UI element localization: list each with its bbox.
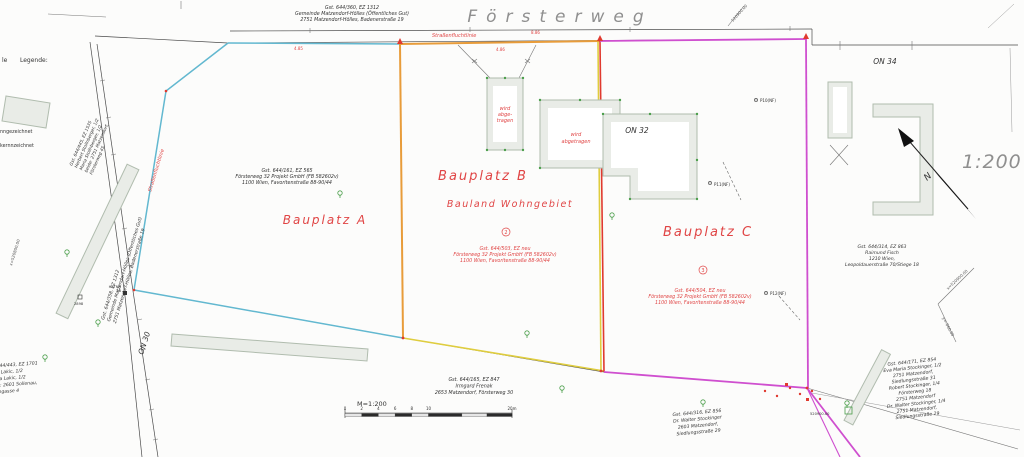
legend-partial-line: kernnzeichnet <box>0 143 34 149</box>
plot-b-label: Bauplatz B <box>438 169 528 184</box>
building-on32-interior <box>611 122 689 191</box>
plot-c-south-boundary <box>604 372 807 388</box>
plot-c-owner-line: 1100 Wien, Favoritenstraße 88-90/44 <box>655 300 745 306</box>
coord-label-top: 520900.00 <box>730 3 748 23</box>
plot-c-number: 3 <box>701 268 704 274</box>
parcel-text-line: Gemeinde Matzendorf-Hölles (Öffentliches… <box>295 10 409 17</box>
coord-label-right-x: x=520900.00 <box>945 268 969 291</box>
coordinate-text: 520900.00 <box>730 3 748 23</box>
coordinate-text: x=520800.00 <box>8 238 21 266</box>
plot-b-owner-line: 1100 Wien, Favoritenstraße 88-90/44 <box>460 258 550 264</box>
on30-label: ON 30 <box>136 330 152 355</box>
boundary-extension-2 <box>807 388 840 457</box>
scale-ratio-label: 1:200 <box>962 151 1022 173</box>
scale-tick-label: 10 <box>426 406 432 411</box>
scale-tick-label: 8 <box>411 406 414 411</box>
legend-title: Legende: <box>20 57 48 64</box>
plot-a-owner-line: 1100 Wien, Favoritenstraße 88-90/44 <box>242 180 332 186</box>
demolish-note-line: wird <box>571 132 583 138</box>
on34-label: ON 34 <box>873 57 897 66</box>
coord-label-left: x=520800.00 <box>8 238 21 266</box>
dimension-label: 8.86 <box>531 30 540 35</box>
neighbor-bottom-right-large-text: Gst. 644/171, EZ 854 Eva Maria Stockinge… <box>882 356 947 422</box>
plot-c-owner-line: Försterweg 32 Projekt GmbH (FB 582602v) <box>648 294 751 300</box>
point-label: P11(NF) <box>714 182 730 187</box>
parcel-text-line: 2653 Matzendorf, Försterweg 30 <box>435 390 513 396</box>
scale-tick-label: 6 <box>394 406 397 411</box>
plot-a-south-boundary <box>134 290 403 338</box>
on30-label-group: ON 30 <box>136 330 152 355</box>
plot-b-number: 2 <box>504 230 507 236</box>
neighbor-right-text: Gst. 644/314, EZ 863 Raimund Fisch 1210 … <box>845 244 919 268</box>
parcel-text-line: Braungasse 4 <box>0 388 19 396</box>
coordinate-text: y=-060.00 <box>941 316 956 337</box>
parcel-text-line: Raimund Fisch <box>865 250 899 256</box>
point-label: P12(NF) <box>770 291 786 296</box>
street-alignment-left-label: Straßenfluchtlinie <box>147 148 166 192</box>
building-bottom-strip <box>171 334 368 361</box>
street-name-label: Försterweg <box>467 7 652 27</box>
plot-b-owner-line: Försterweg 32 Projekt GmbH (FB 582602v) <box>453 252 556 258</box>
plot-a-label: Bauplatz A <box>283 213 368 227</box>
plot-b-texts: Bauplatz B Bauland Wohngebiet 2 Gst. 644… <box>438 169 573 264</box>
demolish-note-line: tragen <box>497 118 514 124</box>
plot-a-owner-line: Gst. 644/161, EZ 565 <box>261 168 312 174</box>
dimension-label: 4.86 <box>496 47 505 52</box>
plot-b-owner-line: Gst. 644/503, EZ neu <box>480 246 531 252</box>
plot-a-texts: Gst. 644/161, EZ 565 Försterweg 32 Proje… <box>235 168 367 227</box>
on32-label: ON 32 <box>625 126 649 135</box>
scale-tick-label: 0 <box>344 406 347 411</box>
scale-tick-label: 2 <box>360 406 363 411</box>
point-label: P10(NF) <box>760 98 776 103</box>
scale-tick-label: 20m <box>508 406 517 411</box>
demolish-note-line: abgetragen <box>562 139 591 145</box>
building-right-small-interior <box>833 87 847 133</box>
legend-partial: le <box>2 57 8 64</box>
building-on34 <box>873 104 933 215</box>
parcel-text-line: Irmgard Frenak <box>455 384 492 390</box>
plot-c-east-boundary <box>806 39 808 388</box>
plot-b-zone-label: Bauland Wohngebiet <box>447 199 573 210</box>
parcel-text-line: Leopoldauerstraße 70/Stiege 18 <box>845 262 919 268</box>
parcel-text-line: Gst. 644/165, EZ 847 <box>448 377 499 383</box>
legend-partial-line: nngezeichnet <box>0 129 33 135</box>
scale-tick-label: 4 <box>377 406 380 411</box>
plot-c-owner-line: Gst. 644/504, EZ neu <box>675 288 726 294</box>
street-alignment-text: Straßenfluchtlinie <box>147 148 166 192</box>
neighbor-bottom-right-small-text: Gst. 644/316, EZ 856 Dr. Walter Stocking… <box>672 408 724 438</box>
neighbor-lower-left-text: Gst. 644/443, EZ 1701 Bojan Lakic, 1/2 J… <box>0 360 40 396</box>
plot-c-north-boundary <box>600 39 806 41</box>
plot-a-west-boundary <box>134 43 228 290</box>
point-label: 520900.00 <box>810 412 830 416</box>
plot-b-south-boundary <box>403 338 604 371</box>
parcel-text-line: 2751 Matzendorf-Hölles, Badenerstraße 19 <box>300 17 403 23</box>
parcel-text-line: 1210 Wien, <box>869 256 895 262</box>
survey-point-labels: P10(NF) P11(NF) P12(NF) HSTNR 48 2898 52… <box>74 98 830 416</box>
cadastral-site-plan: Försterweg Gst. 644/360, EZ 1312 Gemeind… <box>0 0 1024 457</box>
dimension-label: 4.85 <box>294 46 303 51</box>
plot-c-label: Bauplatz C <box>663 225 753 240</box>
street-alignment-top-label: Straßenfluchtlinie <box>432 33 476 39</box>
neighbor-bottom-center-text: Gst. 644/165, EZ 847 Irmgard Frenak 2653… <box>435 377 513 396</box>
plot-a-owner-line: Försterweg 32 Projekt GmbH (FB 582602v) <box>235 174 338 180</box>
neighbor-top-parcel-text: Gst. 644/360, EZ 1312 Gemeinde Matzendor… <box>295 5 409 23</box>
plot-ab-boundary <box>400 44 403 338</box>
building-left-edge <box>2 96 50 128</box>
point-label: 2898 <box>74 302 84 306</box>
plot-a-north-boundary <box>228 43 400 44</box>
parcel-text-line: Gst. 644/314, EZ 863 <box>858 244 907 250</box>
point-label: 48 <box>116 289 121 293</box>
plan-drawing: Försterweg Gst. 644/360, EZ 1312 Gemeind… <box>0 0 1024 457</box>
buildings <box>2 78 933 425</box>
coordinate-text: x=520900.00 <box>945 268 969 291</box>
parcel-text-line: Gst. 644/360, EZ 1312 <box>325 5 379 11</box>
plot-c-texts: Bauplatz C 3 Gst. 644/504, EZ neu Förste… <box>648 225 753 306</box>
coord-label-right-y: y=-060.00 <box>941 316 956 337</box>
